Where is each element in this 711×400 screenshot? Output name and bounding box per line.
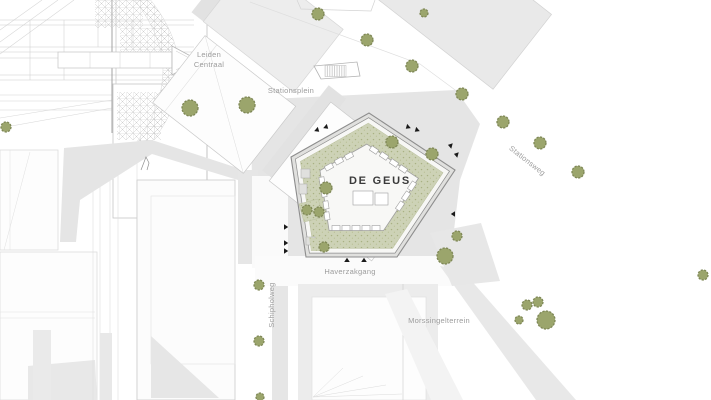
label-haverzakgang: Haverzakgang xyxy=(305,267,395,277)
tree-icon xyxy=(497,116,509,128)
tree-icon xyxy=(361,34,373,46)
tree-icon xyxy=(254,336,264,346)
tree-icon xyxy=(426,148,438,160)
tree-icon xyxy=(452,231,462,241)
tree-icon xyxy=(437,248,453,264)
tree-icon xyxy=(515,316,523,324)
tree-icon xyxy=(314,207,324,217)
label-stationsplein: Stationsplein xyxy=(251,86,331,96)
tree-icon xyxy=(456,88,468,100)
courtyard-stage xyxy=(353,191,373,205)
tree-icon xyxy=(319,242,329,252)
label-morssingelterrein: Morssingelterrein xyxy=(384,316,494,326)
label-de-geus: DE GEUS xyxy=(330,175,430,187)
label-leiden-centraal: Leiden Centraal xyxy=(183,50,235,70)
midleft-building xyxy=(137,180,235,400)
tree-icon xyxy=(534,137,546,149)
tree-icon xyxy=(406,60,418,72)
site-plan-canvas: Leiden Centraal Stationsplein Stationswe… xyxy=(0,0,711,400)
tree-icon xyxy=(182,100,198,116)
station-lattice xyxy=(95,0,143,28)
label-schipholweg: Schipholweg xyxy=(267,265,277,345)
tree-icon xyxy=(537,311,555,329)
tree-icon xyxy=(239,97,255,113)
tree-icon xyxy=(256,393,264,400)
tree-icon xyxy=(572,166,584,178)
tree-icon xyxy=(522,300,532,310)
tree-icon xyxy=(533,297,543,307)
tree-icon xyxy=(420,9,428,17)
tree-icon xyxy=(302,205,312,215)
tree-icon xyxy=(254,280,264,290)
tree-icon xyxy=(698,270,708,280)
site-plan-drawing xyxy=(0,0,711,400)
station-passage xyxy=(58,52,172,68)
tree-icon xyxy=(386,136,398,148)
tree-icon xyxy=(1,122,11,132)
tree-icon xyxy=(312,8,324,20)
